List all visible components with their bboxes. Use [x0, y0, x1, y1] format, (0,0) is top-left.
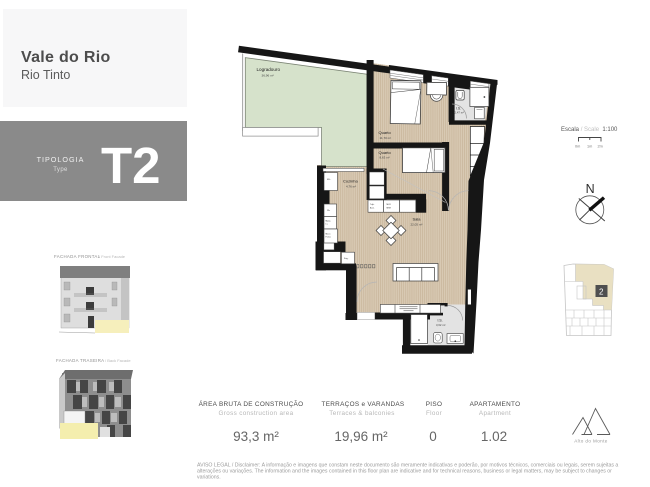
svg-text:Sala: Sala: [413, 217, 422, 222]
svg-text:FACHADA FRONTAL: FACHADA FRONTAL: [54, 254, 101, 259]
svg-text:2: 2: [599, 288, 604, 297]
svg-text:FACHADA TRASEIRA: FACHADA TRASEIRA: [56, 358, 104, 363]
svg-text:Cozinha: Cozinha: [343, 179, 358, 184]
svg-text:MSR: MSR: [387, 208, 392, 210]
svg-text:Mqna: Mqna: [326, 221, 332, 223]
svg-text:2m: 2m: [598, 145, 603, 149]
svg-text:/ Back Facade: / Back Facade: [105, 358, 131, 363]
svg-text:8,63 m²: 8,63 m²: [380, 156, 390, 160]
svg-text:4,76 m²: 4,76 m²: [346, 184, 356, 188]
svg-text:Logradouro: Logradouro: [257, 67, 281, 72]
svg-text:Quarto: Quarto: [379, 130, 392, 135]
svg-text:1m: 1m: [587, 145, 592, 149]
svg-text:11,70 m²: 11,70 m²: [380, 136, 392, 140]
svg-text:/ Front Facade: / Front Facade: [99, 254, 126, 259]
svg-text:Tqlh.: Tqlh.: [370, 204, 375, 206]
svg-text:3,62 m²: 3,62 m²: [436, 323, 446, 327]
svg-text:36,96 m²: 36,96 m²: [262, 74, 274, 78]
svg-text:alterações ou variações. The i: alterações ou variações. The information…: [197, 469, 612, 475]
svg-text:MLR: MLR: [387, 204, 392, 206]
svg-text:Frig.: Frig.: [344, 257, 349, 260]
svg-text:Alto do Monte: Alto do Monte: [574, 439, 608, 444]
svg-text:Asst.: Asst.: [370, 207, 375, 210]
svg-text:Pb.: Pb.: [327, 210, 331, 212]
svg-text:variations.: variations.: [197, 475, 221, 481]
svg-text:Quarto: Quarto: [379, 150, 392, 155]
svg-text:22,05 m²: 22,05 m²: [411, 222, 423, 226]
svg-text:N: N: [586, 182, 595, 196]
svg-text:Lv.: Lv.: [326, 224, 329, 226]
svg-text:M.L.: M.L.: [327, 179, 332, 181]
svg-text:2,47 m²: 2,47 m²: [455, 111, 465, 115]
svg-text:I.S.: I.S.: [438, 319, 443, 323]
svg-text:Forno: Forno: [326, 237, 332, 239]
svg-text:0m: 0m: [575, 145, 580, 149]
